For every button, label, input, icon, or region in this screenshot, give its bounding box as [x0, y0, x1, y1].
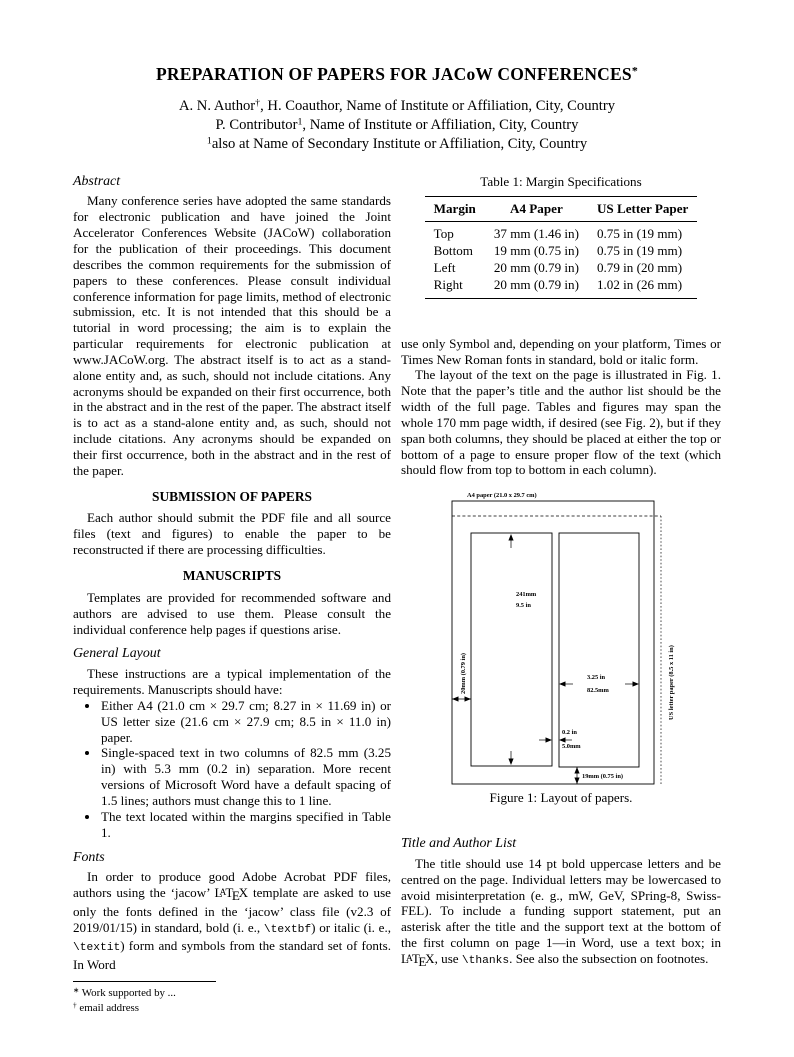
- two-column-body: Abstract Many conference series have ado…: [73, 171, 721, 1015]
- col-height-mm-label: 241mm: [516, 591, 537, 598]
- arrow-right: [633, 682, 640, 687]
- general-layout-heading: General Layout: [73, 646, 391, 662]
- abstract-heading: Abstract: [73, 174, 391, 190]
- figure-caption: Figure 1: Layout of papers.: [401, 790, 721, 806]
- fonts-heading: Fonts: [73, 850, 391, 866]
- author-line: 1also at Name of Secondary Institute or …: [73, 135, 721, 154]
- abstract-paragraph: Many conference series have adopted the …: [73, 193, 391, 478]
- table-cell: 37 mm (1.46 in): [485, 222, 588, 243]
- table-cell: 0.79 in (20 mm): [588, 259, 697, 276]
- title-block: PREPARATION OF PAPERS FOR JACoW CONFEREN…: [73, 64, 721, 155]
- left-column: Abstract Many conference series have ado…: [73, 171, 391, 1015]
- layout-paragraph: The layout of the text on the page is il…: [401, 367, 721, 478]
- table-header-cell: Margin: [425, 197, 485, 222]
- gap-mm-label: 5.0mm: [562, 743, 581, 750]
- title-author-list-paragraph: The title should use 14 pt bold uppercas…: [401, 856, 721, 970]
- table-header-row: Margin A4 Paper US Letter Paper: [425, 197, 698, 222]
- fonts-paragraph: In order to produce good Adobe Acrobat P…: [73, 869, 391, 973]
- manuscripts-heading: MANUSCRIPTS: [73, 568, 391, 584]
- figure-1: A4 paper (21.0 x 29.7 cm) US letter pape…: [401, 486, 721, 806]
- gap-in-label: 0.2 in: [562, 729, 577, 736]
- arrow-left: [559, 682, 566, 687]
- bottom-margin-label: 19mm (0.75 in): [582, 773, 623, 780]
- footnote-rule: [73, 981, 216, 982]
- arrow-down: [574, 778, 579, 785]
- layout-diagram: A4 paper (21.0 x 29.7 cm) US letter pape…: [401, 486, 721, 787]
- a4-outline: [452, 501, 654, 784]
- arrow-up: [574, 767, 579, 774]
- table-cell: 0.75 in (19 mm): [588, 222, 697, 243]
- table-cell: Right: [425, 276, 485, 298]
- table-row: Left 20 mm (0.79 in) 0.79 in (20 mm): [425, 259, 698, 276]
- arrow-left: [559, 738, 566, 743]
- bullet-item: Single-spaced text in two columns of 82.…: [100, 745, 391, 808]
- table-cell: Bottom: [425, 243, 485, 260]
- author-line: A. N. Author†, H. Coauthor, Name of Inst…: [73, 97, 721, 116]
- a4-paper-label: A4 paper (21.0 x 29.7 cm): [467, 492, 537, 499]
- table-header-cell: A4 Paper: [485, 197, 588, 222]
- arrow-up: [508, 534, 513, 541]
- col-width-mm-label: 82.5mm: [587, 687, 610, 694]
- manuscripts-paragraph: Templates are provided for recommended s…: [73, 590, 391, 638]
- table-row: Bottom 19 mm (0.75 in) 0.75 in (19 mm): [425, 243, 698, 260]
- footnote-email: † email address: [73, 1001, 391, 1016]
- footnote-funding: ∗ Work supported by ...: [73, 986, 391, 1001]
- table-cell: Top: [425, 222, 485, 243]
- left-margin-label: 20mm (0.79 in): [460, 653, 467, 694]
- table-row: Top 37 mm (1.46 in) 0.75 in (19 mm): [425, 222, 698, 243]
- table-cell: 19 mm (0.75 in): [485, 243, 588, 260]
- footnote-block: ∗ Work supported by ... † email address: [73, 981, 391, 1015]
- submission-heading: SUBMISSION OF PAPERS: [73, 489, 391, 505]
- fonts-continuation-paragraph: use only Symbol and, depending on your p…: [401, 336, 721, 368]
- bullet-item: The text located within the margins spec…: [100, 809, 391, 841]
- table-cell: 0.75 in (19 mm): [588, 243, 697, 260]
- arrow-right: [465, 697, 472, 702]
- title-author-list-heading: Title and Author List: [401, 836, 721, 852]
- table-row: Right 20 mm (0.79 in) 1.02 in (26 mm): [425, 276, 698, 298]
- paper-page: PREPARATION OF PAPERS FOR JACoW CONFEREN…: [0, 0, 794, 1057]
- table-cell: 20 mm (0.79 in): [485, 259, 588, 276]
- latex-wordmark: LATEX: [214, 885, 248, 900]
- us-letter-label: US letter paper (8.5 x 11 in): [668, 645, 675, 720]
- submission-paragraph: Each author should submit the PDF file a…: [73, 510, 391, 558]
- latex-wordmark: LATEX: [401, 951, 435, 966]
- paper-title: PREPARATION OF PAPERS FOR JACoW CONFEREN…: [73, 64, 721, 85]
- author-line: P. Contributor1, Name of Institute or Af…: [73, 116, 721, 135]
- table-caption: Table 1: Margin Specifications: [401, 174, 721, 190]
- table-header-cell: US Letter Paper: [588, 197, 697, 222]
- general-layout-intro: These instructions are a typical impleme…: [73, 666, 391, 698]
- general-layout-bullets: Either A4 (21.0 cm × 29.7 cm; 8.27 in × …: [73, 698, 391, 841]
- col-width-in-label: 3.25 in: [587, 674, 606, 681]
- col-height-in-label: 9.5 in: [516, 602, 531, 609]
- left-column-box: [471, 533, 552, 766]
- table-cell: 20 mm (0.79 in): [485, 276, 588, 298]
- arrow-right: [546, 738, 553, 743]
- table-cell: 1.02 in (26 mm): [588, 276, 697, 298]
- margin-spec-table: Margin A4 Paper US Letter Paper Top 37 m…: [425, 196, 698, 298]
- table-cell: Left: [425, 259, 485, 276]
- arrow-down: [508, 759, 513, 766]
- right-column: Table 1: Margin Specifications Margin A4…: [401, 171, 721, 1015]
- arrow-left: [452, 697, 459, 702]
- bullet-item: Either A4 (21.0 cm × 29.7 cm; 8.27 in × …: [100, 698, 391, 746]
